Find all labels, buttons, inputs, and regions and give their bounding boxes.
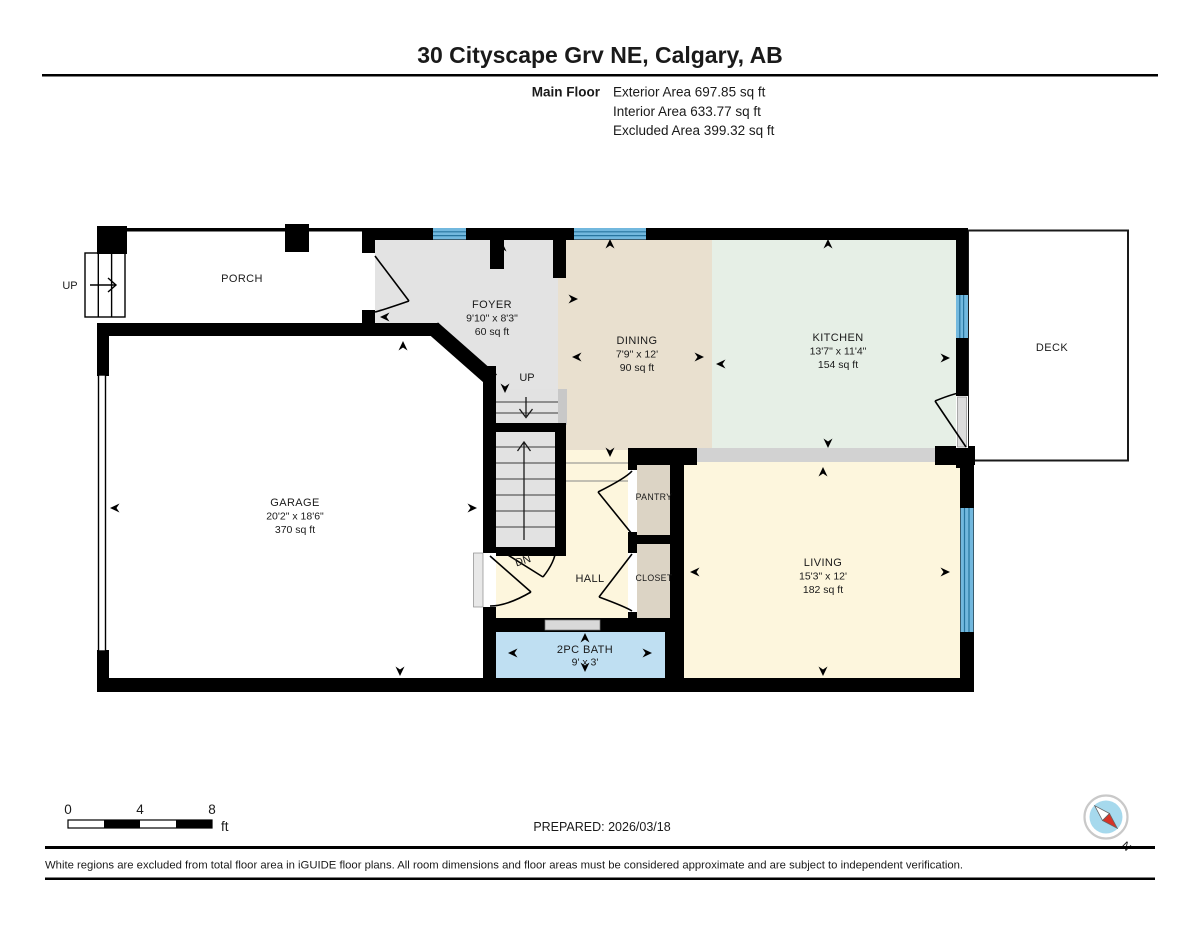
prepared-date: PREPARED: 2026/03/18 (533, 820, 670, 834)
footer-rule-bottom (45, 878, 1155, 881)
pantry-label: PANTRY (636, 492, 673, 502)
garage-dims: 20'2" x 18'6" (266, 511, 324, 523)
scale-bar: 0 4 8 ft (64, 802, 229, 834)
kitchen-window (956, 295, 968, 338)
kitchen-dims: 13'7" x 11'4" (810, 346, 867, 358)
stairs-up-label: UP (519, 372, 534, 384)
living-label: LIVING (804, 557, 842, 569)
kitchen-living-divider (693, 448, 935, 462)
foyer-dims: 9'10" x 8'3" (466, 313, 518, 325)
kitchen-label: KITCHEN (812, 332, 863, 344)
bath-door (545, 620, 600, 630)
compass-icon: N (1085, 796, 1134, 854)
excluded-area-line: Excluded Area 399.32 sq ft (613, 123, 775, 138)
foyer-label: FOYER (472, 299, 512, 311)
page-title: 30 Cityscape Grv NE, Calgary, AB (417, 42, 783, 68)
porch-label: PORCH (221, 273, 263, 285)
dining-sqft: 90 sq ft (620, 362, 655, 374)
scale-tick-0: 0 (64, 802, 72, 817)
garage-label: GARAGE (270, 497, 319, 509)
living-sqft: 182 sq ft (803, 584, 843, 596)
disclaimer-text: White regions are excluded from total fl… (45, 860, 963, 872)
porch-up-label: UP (62, 280, 77, 292)
dining-label: DINING (617, 335, 658, 347)
living-window (961, 508, 974, 632)
garage-door (99, 375, 106, 651)
footer-rule-top (45, 846, 1155, 849)
garage-sqft: 370 sq ft (275, 524, 315, 536)
kitchen-sqft: 154 sq ft (818, 359, 858, 371)
interior-area-line: Interior Area 633.77 sq ft (613, 104, 761, 119)
foyer-window (433, 228, 466, 240)
deck-label: DECK (1036, 342, 1068, 354)
closet-label: CLOSET (636, 573, 673, 583)
living-dims: 15'3" x 12' (799, 571, 847, 583)
bath-label: 2PC BATH (557, 644, 613, 656)
floorplan-page: 30 Cityscape Grv NE, Calgary, AB Main Fl… (0, 0, 1200, 927)
scale-unit: ft (221, 819, 229, 834)
exterior-area-line: Exterior Area 697.85 sq ft (613, 85, 766, 100)
floor-label: Main Floor (532, 85, 601, 100)
scale-tick-8: 8 (208, 802, 216, 817)
foyer-sqft: 60 sq ft (475, 326, 510, 338)
dining-dims: 7'9" x 12' (616, 349, 658, 361)
header-rule (42, 74, 1158, 77)
dining-window (574, 228, 646, 240)
scale-tick-4: 4 (136, 802, 144, 817)
porch-steps (85, 253, 125, 317)
hall-label: HALL (575, 573, 604, 585)
floorplan-canvas: 30 Cityscape Grv NE, Calgary, AB Main Fl… (0, 0, 1200, 927)
bath-dims: 9' x 3' (572, 657, 599, 669)
